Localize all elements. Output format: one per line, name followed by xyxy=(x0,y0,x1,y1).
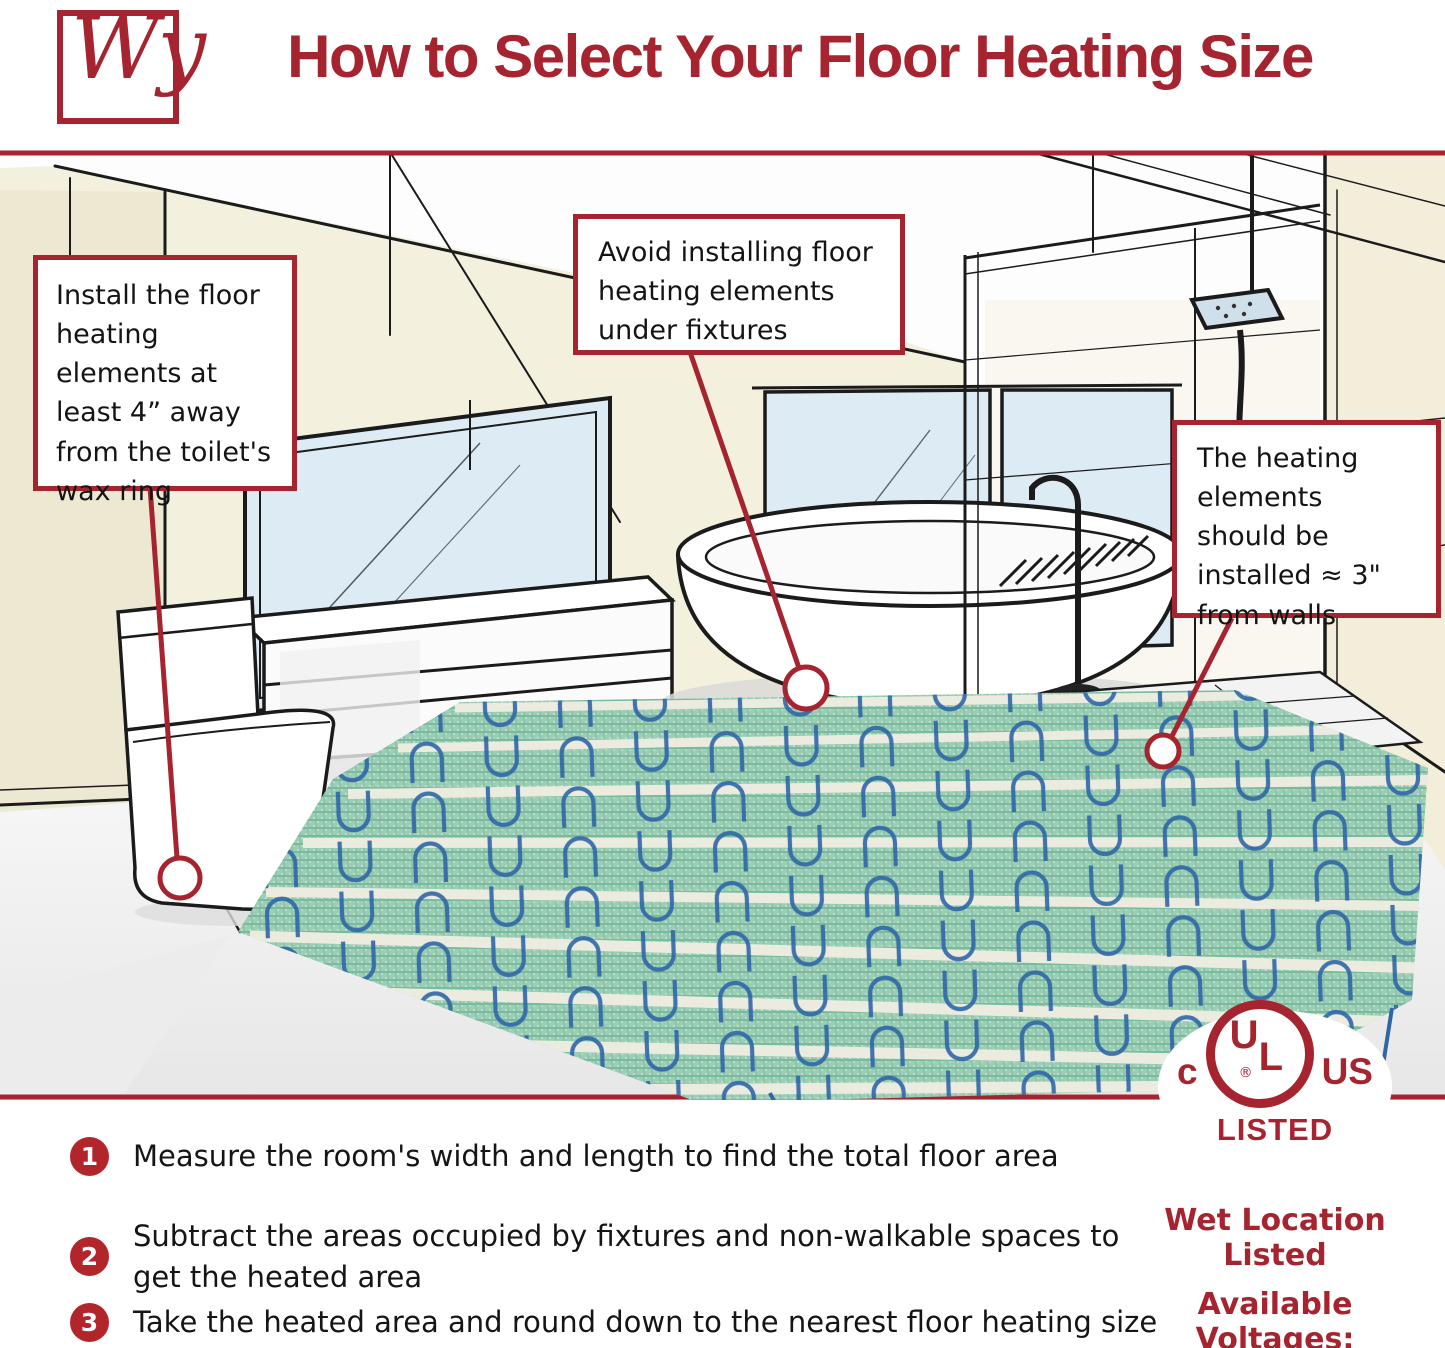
step-row-2: 2 Subtract the areas occupied by fixture… xyxy=(70,1216,1360,1297)
ul-certification: c U L ® US LISTED xyxy=(1150,1000,1400,1148)
page-title: How to Select Your Floor Heating Size xyxy=(210,22,1390,91)
ul-us-label: US xyxy=(1322,1051,1373,1093)
tub-marker-circle xyxy=(785,667,827,709)
step-row-3: 3 Take the heated area and round down to… xyxy=(70,1302,1360,1343)
ul-c-label: c xyxy=(1177,1051,1198,1093)
step-1-badge: 1 xyxy=(70,1137,109,1176)
callout-under-fixtures: Avoid installing floor heating elements … xyxy=(573,214,905,355)
callout-distance-from-walls: The heating elements should be installed… xyxy=(1172,420,1441,618)
toilet-marker-circle xyxy=(160,858,200,898)
ul-logo-circle: U L ® xyxy=(1206,1000,1314,1108)
step-row-1: 1 Measure the room's width and length to… xyxy=(70,1136,1360,1177)
step-1-text: Measure the room's width and length to f… xyxy=(133,1136,1059,1177)
infographic-page: Wy How to Select Your Floor Heating Size xyxy=(0,0,1445,1348)
ul-letter-u: U xyxy=(1230,1013,1259,1058)
step-2-text: Subtract the areas occupied by fixtures … xyxy=(133,1216,1119,1297)
registered-mark: ® xyxy=(1239,1065,1253,1081)
step-3-text: Take the heated area and round down to t… xyxy=(133,1302,1157,1343)
callout-toilet-wax-ring: Install the floor heating elements at le… xyxy=(33,255,297,491)
brand-logo-text: Wy xyxy=(71,2,206,97)
step-2-badge: 2 xyxy=(70,1237,109,1276)
step-3-badge: 3 xyxy=(70,1303,109,1342)
ul-letter-l: L xyxy=(1259,1035,1283,1080)
brand-logo: Wy xyxy=(57,10,179,124)
shower-marker-circle xyxy=(1147,735,1179,767)
